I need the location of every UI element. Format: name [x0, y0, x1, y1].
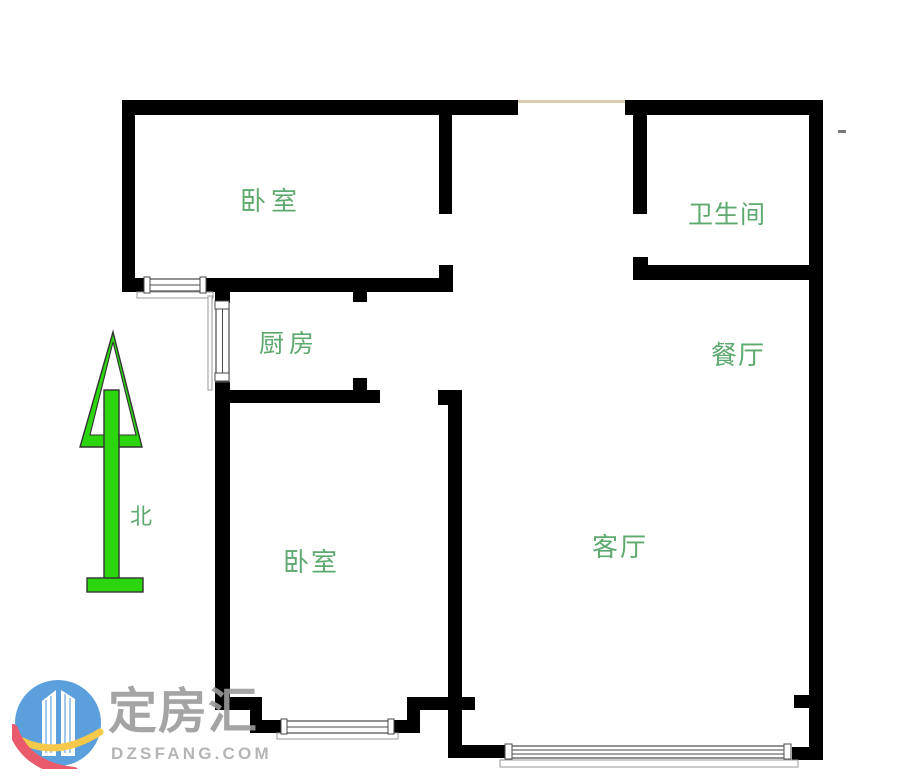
window-sills: [137, 292, 798, 767]
window-bedroom-left: [281, 719, 394, 734]
room-label-dining: 餐厅: [711, 343, 765, 369]
floor-plan-svg: [0, 0, 900, 781]
sill-living-room: [500, 760, 798, 767]
entry-door-line: [518, 100, 625, 103]
room-label-bathroom: 卫生间: [688, 203, 766, 228]
sill-bedroom-left: [277, 733, 398, 739]
room-label-bedroom-top: 卧室: [240, 189, 302, 215]
window-living-room: [505, 744, 791, 759]
walls: [122, 100, 823, 760]
sill-kitchen: [208, 296, 212, 390]
room-label-bedroom-left: 卧室: [283, 550, 339, 576]
north-label: 北: [130, 506, 152, 528]
window-bedroom-top: [144, 277, 206, 293]
room-label-kitchen: 厨房: [259, 332, 319, 357]
north-arrow-icon: [80, 332, 143, 592]
window-kitchen: [215, 301, 229, 382]
stray-dash-mark: [838, 130, 846, 133]
floor-plan-screenshot: 卧室 卫生间 厨房 餐厅 卧室 客厅 北 定房汇 DZSFANG.COM: [0, 0, 900, 781]
room-label-living: 客厅: [592, 535, 648, 561]
